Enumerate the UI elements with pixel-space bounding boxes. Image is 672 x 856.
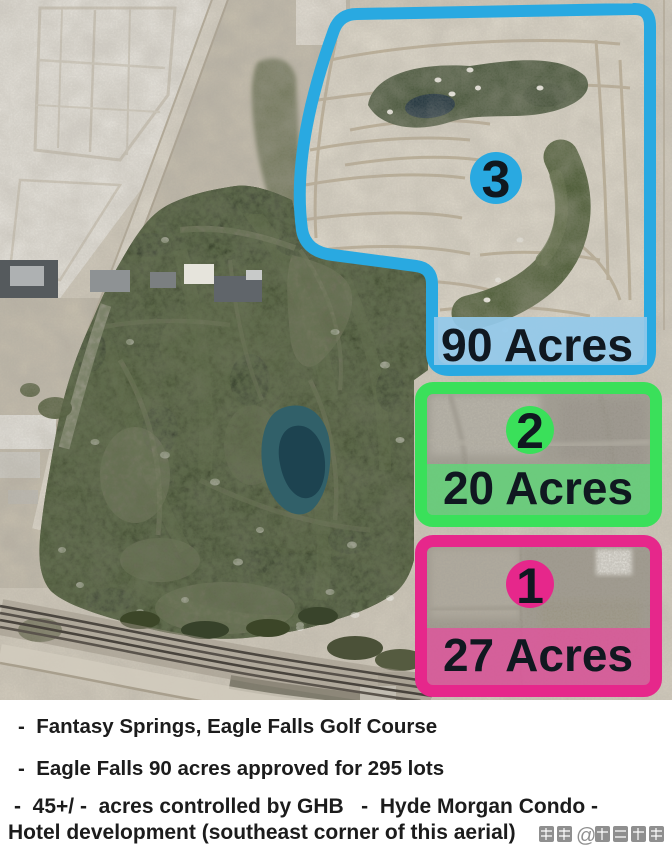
- svg-text:1: 1: [516, 558, 544, 614]
- svg-text:- Fantasy Springs, Eagle Fall: - Fantasy Springs, Eagle Falls Golf Cour…: [18, 715, 437, 738]
- svg-text:90 Acres: 90 Acres: [441, 319, 633, 371]
- svg-text:27 Acres: 27 Acres: [443, 629, 633, 681]
- svg-text:- Eagle Falls 90 acres approv: - Eagle Falls 90 acres approved for 295 …: [18, 757, 444, 780]
- svg-text:@: @: [576, 825, 596, 847]
- svg-text:- 45+/ - acres controlled by: - 45+/ - acres controlled by GHB - Hyde …: [14, 795, 598, 818]
- svg-text:3: 3: [482, 151, 511, 209]
- svg-text:Hotel development (southeast c: Hotel development (southeast corner of t…: [8, 821, 516, 844]
- svg-text:20 Acres: 20 Acres: [443, 462, 633, 514]
- svg-text:2: 2: [516, 403, 544, 459]
